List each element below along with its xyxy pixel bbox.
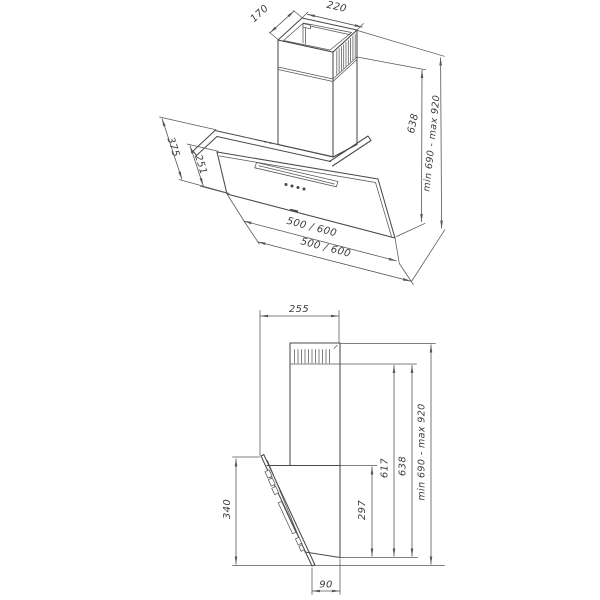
- chimney-front-face: [278, 40, 333, 157]
- cooker-hood-dimension-drawing: 220 170 375 251 500 / 600 500 / 600 63: [0, 0, 600, 600]
- side-control-details: [265, 470, 304, 551]
- dim-line-chimney-height: [422, 70, 423, 222]
- dim-label-duct-height: 617: [380, 458, 391, 479]
- dim-label-side-install-height: min 690 - max 920: [417, 403, 428, 500]
- perspective-view: 220 170 375 251 500 / 600 500 / 600 63: [160, 0, 445, 285]
- dim-label-width-lower: 500 / 600: [299, 236, 352, 260]
- dim-label-top-depth: 170: [249, 3, 271, 25]
- dim-label-panel-depth: 375: [165, 136, 182, 159]
- screw-dot: [270, 142, 272, 144]
- dim-label-glass-depth: 251: [192, 153, 209, 176]
- dim-label-wall-offset: 90: [319, 580, 333, 591]
- dim-label-glass-height: 340: [222, 499, 233, 519]
- dim-label-side-top-depth: 255: [289, 304, 309, 315]
- vent-pointer-tick: [334, 345, 337, 348]
- technical-drawing-page: 220 170 375 251 500 / 600 500 / 600 63: [0, 0, 600, 600]
- vent-grille-side: [295, 350, 330, 364]
- side-view: 255 340 297 617 638 min 690 - max 920 90: [222, 304, 445, 595]
- side-dimensions: 255 340 297 617 638 min 690 - max 920 90: [222, 304, 445, 595]
- button-dot: [303, 188, 306, 191]
- dim-label-install-height: min 690 - max 920: [421, 94, 442, 192]
- button-dot: [291, 185, 294, 188]
- dim-label-chimney-height: 638: [406, 112, 421, 134]
- button-dot: [285, 183, 288, 186]
- chimney-duct: [278, 18, 357, 157]
- side-chimney: [290, 343, 417, 558]
- screw-dot: [264, 141, 266, 143]
- dim-label-top-width: 220: [325, 0, 347, 15]
- dim-line-install-height: [441, 58, 442, 229]
- button-dot: [297, 186, 300, 189]
- dim-label-side-chimney-height: 638: [398, 456, 409, 476]
- dim-label-body-height: 297: [357, 500, 368, 521]
